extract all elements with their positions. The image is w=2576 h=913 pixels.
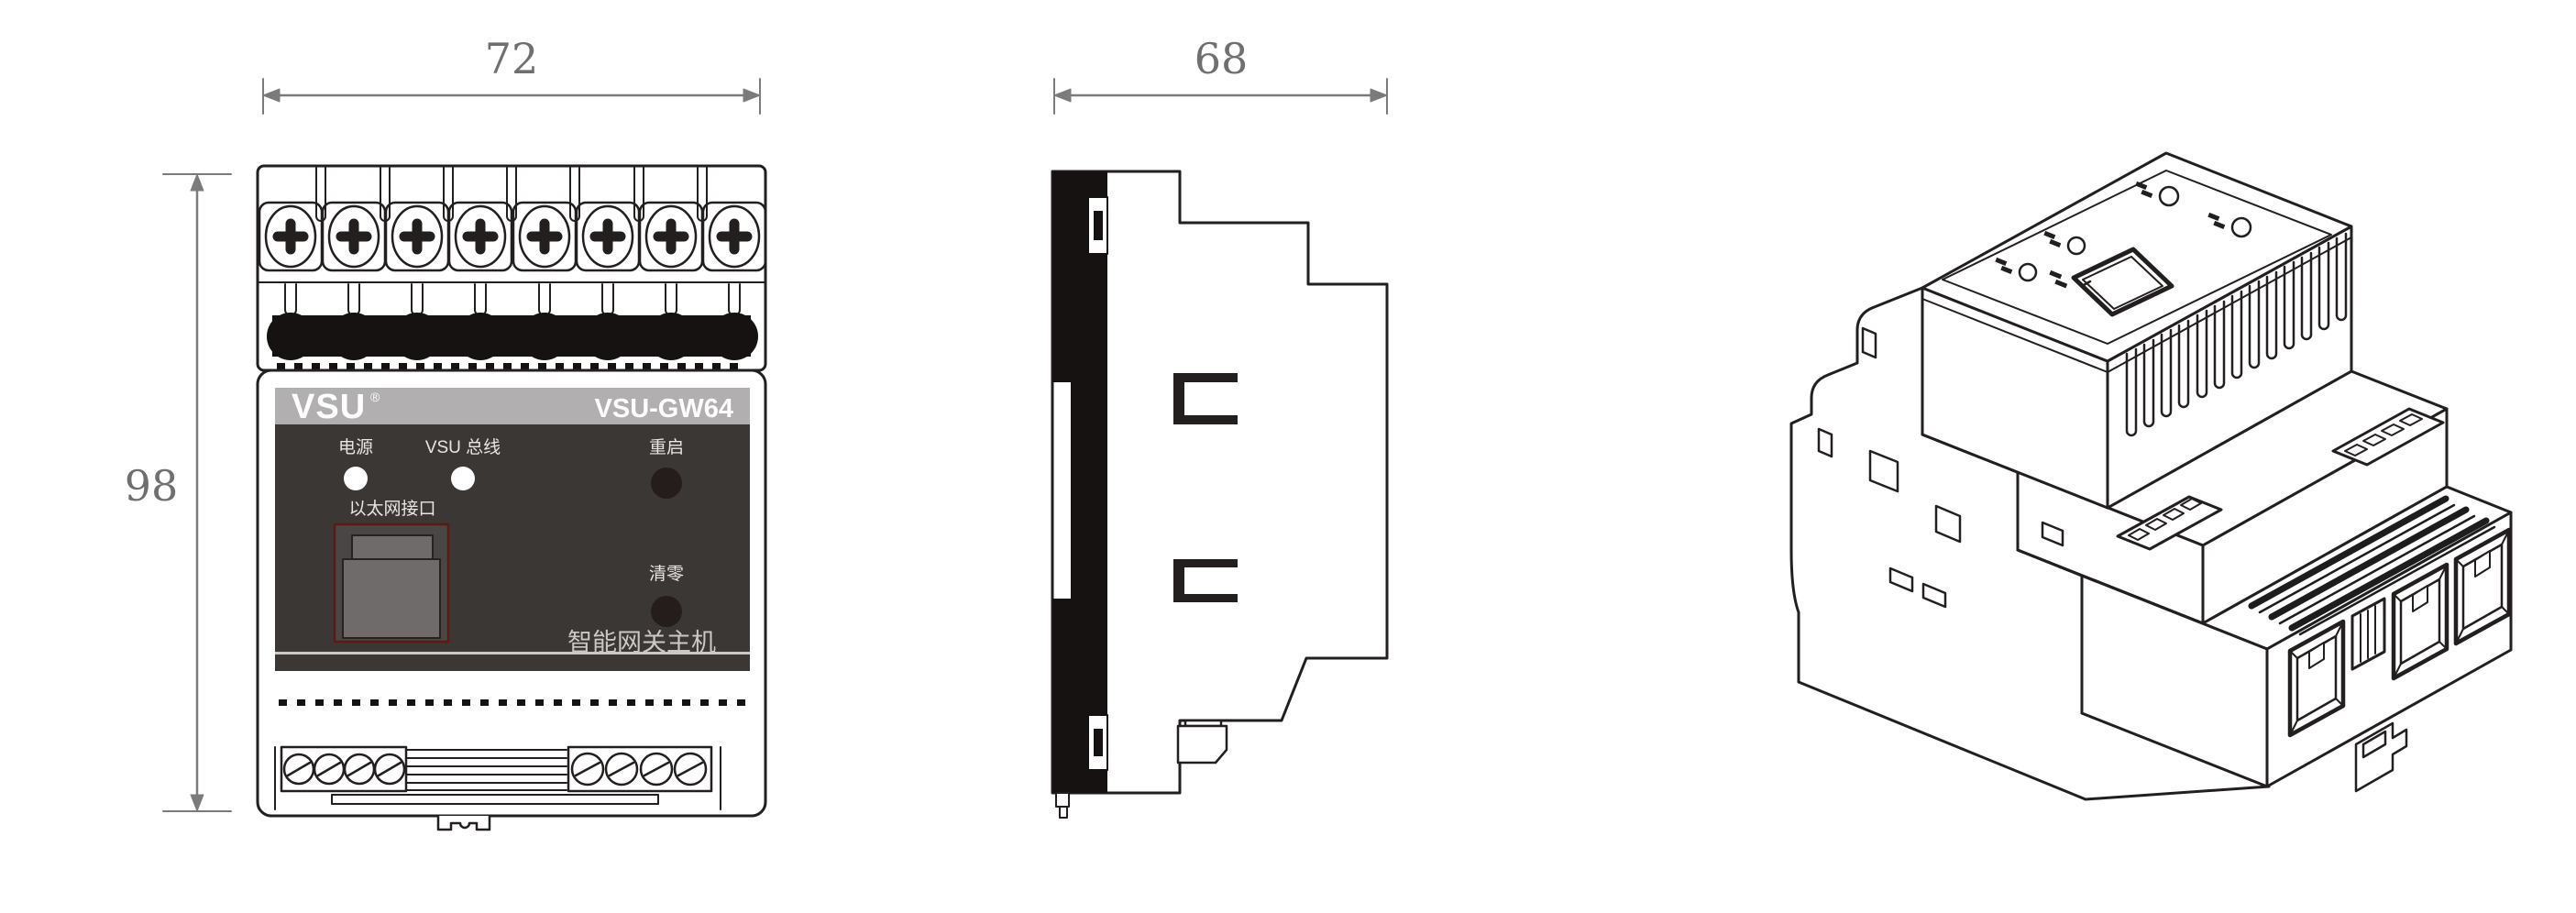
side-view: 68 <box>1052 34 1387 818</box>
front-width-dimension <box>263 79 760 114</box>
front-view: 72 98 <box>125 34 765 830</box>
iso-view <box>1791 153 2511 799</box>
bus-led <box>451 467 475 490</box>
registered-mark: ® <box>370 390 380 404</box>
side-depth-value: 68 <box>1194 34 1249 83</box>
clear-button[interactable] <box>651 596 682 627</box>
restart-label: 重启 <box>649 437 684 457</box>
din-clip-side <box>1178 720 1227 763</box>
brand-logo: VSU <box>292 388 366 426</box>
arrow-up-icon <box>191 174 204 191</box>
arrow-left-icon <box>1054 89 1071 102</box>
front-width-value: 72 <box>485 34 539 83</box>
bus-label: VSU 总线 <box>425 437 501 457</box>
ethernet-port[interactable] <box>335 524 448 642</box>
power-led <box>344 467 368 490</box>
arrow-left-icon <box>263 89 280 102</box>
technical-drawing-page: 72 98 <box>0 0 2576 913</box>
arrow-right-icon <box>1371 89 1387 102</box>
gateway-dimension-drawing: 72 98 <box>0 0 2576 913</box>
clear-label: 清零 <box>649 564 684 584</box>
restart-button[interactable] <box>651 467 682 499</box>
side-depth-dimension <box>1054 79 1387 114</box>
side-bottom-pin <box>1056 793 1069 818</box>
wire-entry-connectors <box>267 313 758 360</box>
front-height-value: 98 <box>125 461 179 511</box>
arrow-down-icon <box>191 795 204 811</box>
arrow-right-icon <box>743 89 760 102</box>
din-clip-front <box>438 816 490 830</box>
product-name-label: 智能网关主机 <box>567 629 716 656</box>
ethernet-label: 以太网接口 <box>348 499 435 519</box>
top-terminal-block <box>258 166 765 370</box>
power-label: 电源 <box>338 437 373 457</box>
model-label: VSU-GW64 <box>595 394 733 423</box>
bottom-slot <box>332 795 658 804</box>
